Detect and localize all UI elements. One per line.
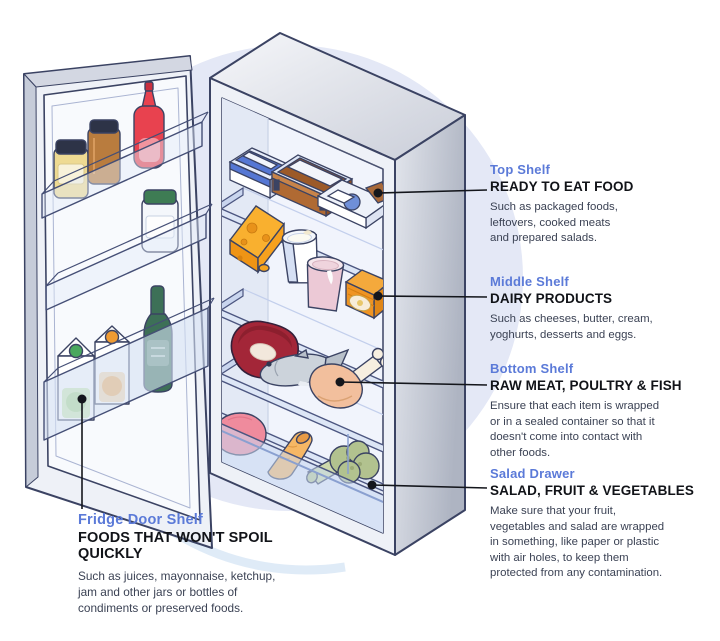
callout-body: Such as juices, mayonnaise, ketchup, jam… xyxy=(78,568,328,616)
callout-heading: FOODS THAT WON'T SPOIL QUICKLY xyxy=(78,530,328,562)
callout-dot-middle-shelf xyxy=(374,292,383,301)
callout-body: Ensure that each item is wrapped or in a… xyxy=(490,399,690,461)
callout-bottom-shelf: Bottom Shelf RAW MEAT, POULTRY & FISH En… xyxy=(490,361,690,461)
callout-heading: DAIRY PRODUCTS xyxy=(490,291,690,306)
callout-body: Make sure that your fruit, vegetables an… xyxy=(490,504,695,582)
callout-label: Top Shelf xyxy=(490,162,675,177)
callout-dot-bottom-shelf xyxy=(336,378,345,387)
callout-body: Such as cheeses, butter, cream, yoghurts… xyxy=(490,312,690,343)
callout-line-middle-shelf xyxy=(378,296,487,297)
door-left-edge xyxy=(24,74,38,487)
callout-middle-shelf: Middle Shelf DAIRY PRODUCTS Such as chee… xyxy=(490,274,690,343)
callout-salad-drawer: Salad Drawer SALAD, FRUIT & VEGETABLES M… xyxy=(490,466,695,582)
callout-heading: SALAD, FRUIT & VEGETABLES xyxy=(490,483,695,498)
yoghurt-cup xyxy=(304,256,344,311)
callout-body: Such as packaged foods, leftovers, cooke… xyxy=(490,200,675,247)
callout-heading: RAW MEAT, POULTRY & FISH xyxy=(490,378,690,393)
callout-dot-top-shelf xyxy=(374,189,383,198)
callout-dot-salad-drawer xyxy=(368,481,377,490)
fridge-door xyxy=(24,56,214,548)
callout-label: Middle Shelf xyxy=(490,274,690,289)
cabinet-right-face xyxy=(395,115,465,555)
callout-top-shelf: Top Shelf READY TO EAT FOOD Such as pack… xyxy=(490,162,675,247)
callout-label: Bottom Shelf xyxy=(490,361,690,376)
fridge-infographic: Top Shelf READY TO EAT FOOD Such as pack… xyxy=(0,0,720,641)
callout-dot-door-shelf xyxy=(78,395,87,404)
callout-heading: READY TO EAT FOOD xyxy=(490,179,675,194)
callout-label: Salad Drawer xyxy=(490,466,695,481)
callout-label: Fridge Door Shelf xyxy=(78,512,328,528)
callout-fridge-door-shelf: Fridge Door Shelf FOODS THAT WON'T SPOIL… xyxy=(78,512,328,616)
